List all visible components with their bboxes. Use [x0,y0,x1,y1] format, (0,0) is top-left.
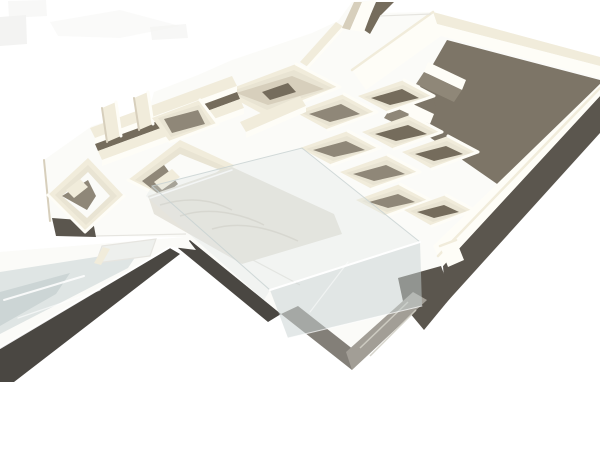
artifact-square [8,0,47,18]
artifact-square [0,15,27,46]
model-scene-canvas [0,0,600,450]
architectural-model-photo [0,0,600,450]
